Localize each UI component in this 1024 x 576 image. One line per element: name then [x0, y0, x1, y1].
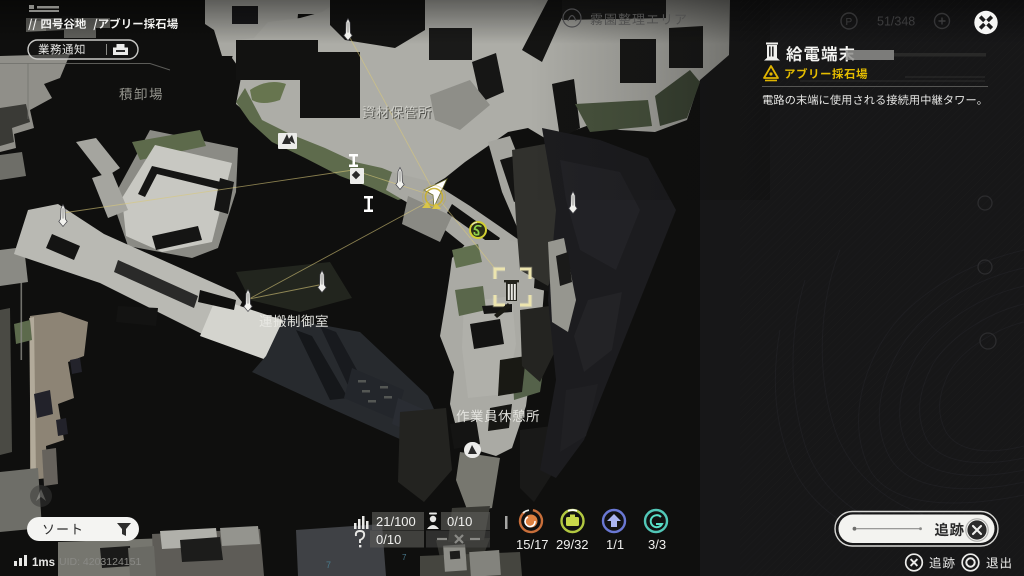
svg-text:1ms: 1ms: [32, 557, 55, 569]
svg-text:P: P: [846, 17, 853, 28]
svg-text:7: 7: [326, 560, 331, 570]
svg-text:0/10: 0/10: [447, 514, 472, 529]
svg-text:21/100: 21/100: [376, 514, 416, 529]
svg-text:15/17: 15/17: [516, 537, 549, 552]
svg-text:0/10: 0/10: [376, 532, 401, 547]
svg-text:3/3: 3/3: [648, 537, 666, 552]
svg-text:7: 7: [402, 553, 407, 562]
svg-text:51/348: 51/348: [877, 15, 915, 29]
svg-text:29/32: 29/32: [556, 537, 589, 552]
svg-text:1/1: 1/1: [606, 537, 624, 552]
svg-text:UID: 4203124151: UID: 4203124151: [59, 556, 141, 568]
